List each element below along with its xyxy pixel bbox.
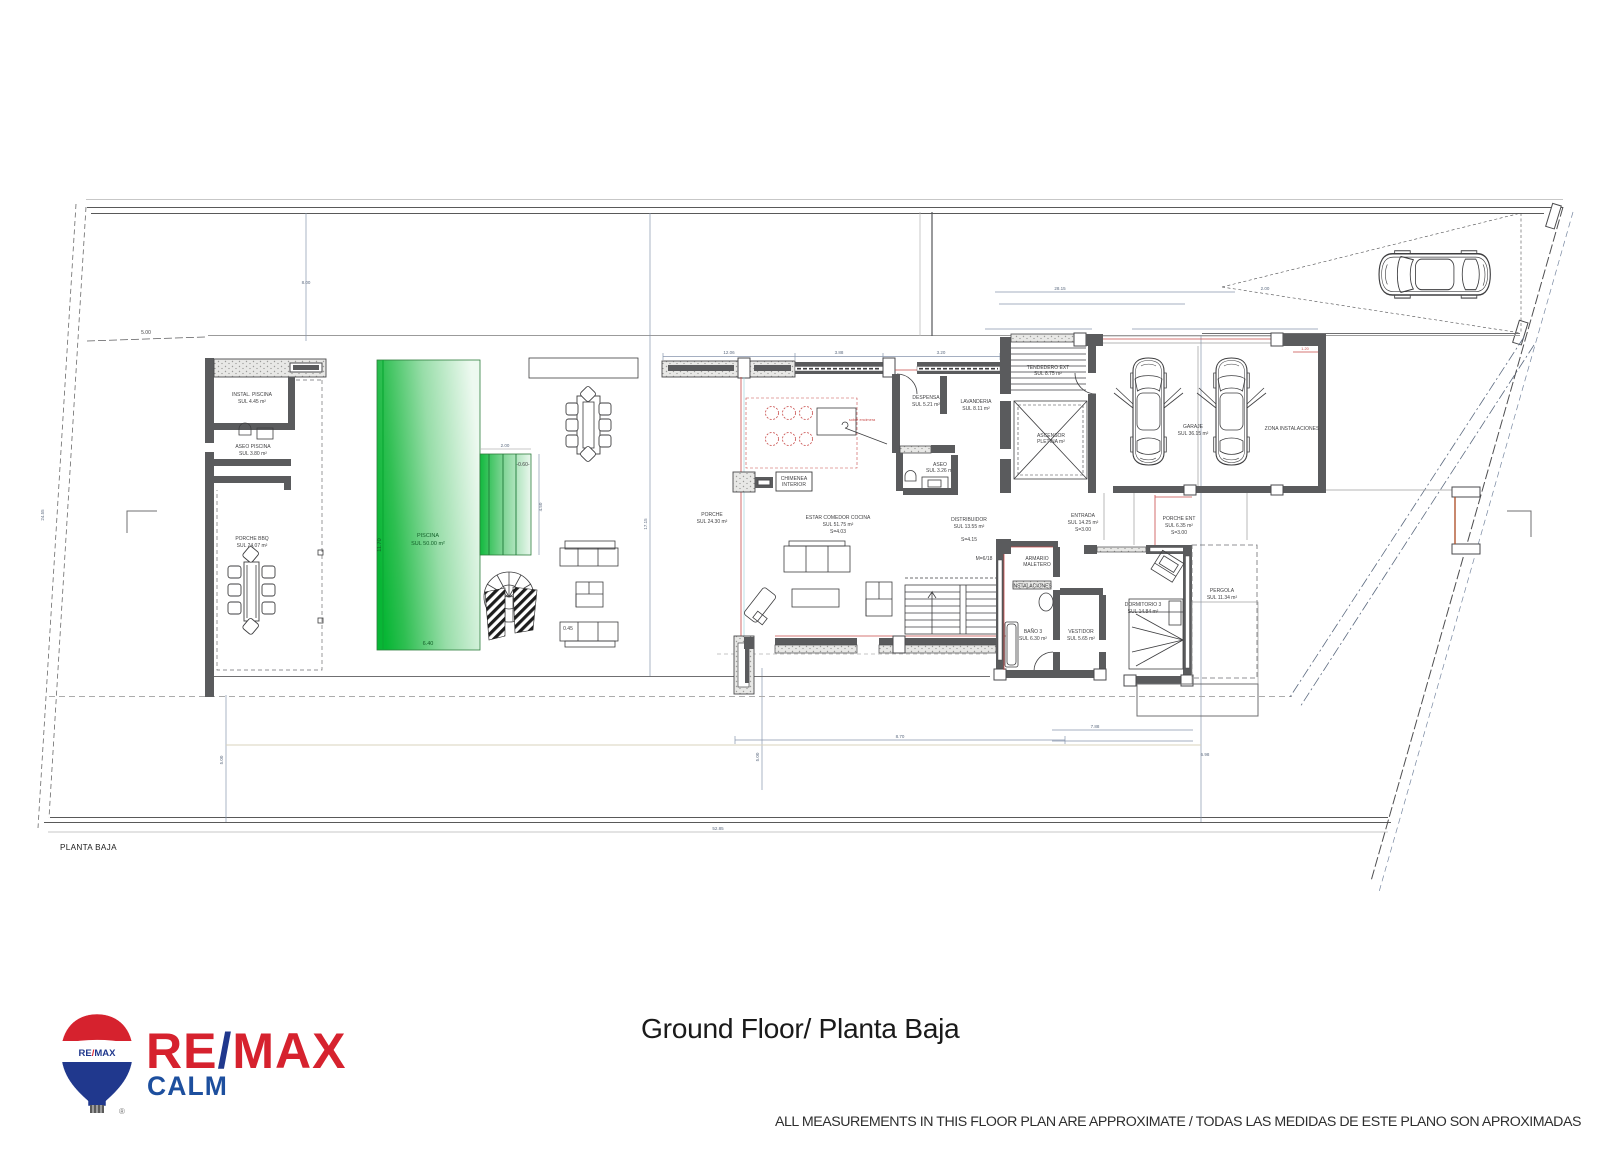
svg-text:Ground Floor/ Planta Baja: Ground Floor/ Planta Baja [641,1012,960,1044]
svg-text:SUL 3.26 m²: SUL 3.26 m² [926,468,954,474]
svg-text:GARAJE: GARAJE [1183,424,1204,430]
svg-text:11.70: 11.70 [377,538,383,551]
svg-text:SUL 36.15 m²: SUL 36.15 m² [1178,431,1209,437]
svg-text:5.00: 5.00 [141,330,151,336]
svg-text:6.40: 6.40 [423,641,434,647]
svg-text:ENTRADA: ENTRADA [1071,513,1096,519]
svg-text:ESTAR COMEDOR COCINA: ESTAR COMEDOR COCINA [806,515,871,521]
svg-text:SUL 14.25 m²: SUL 14.25 m² [1068,520,1099,526]
svg-text:DORMITORIO 3: DORMITORIO 3 [1125,602,1162,608]
svg-text:DISTRIBUIDOR: DISTRIBUIDOR [951,517,987,523]
svg-text:VESTIDOR: VESTIDOR [1068,629,1094,635]
svg-text:M=6/18: M=6/18 [976,556,993,562]
svg-text:S=3.00: S=3.00 [1075,527,1091,533]
svg-text:24.55: 24.55 [40,509,45,521]
svg-text:MALETERO: MALETERO [1023,562,1051,568]
svg-text:SUL 5.21 m²: SUL 5.21 m² [912,402,940,408]
svg-text:52.85: 52.85 [712,826,724,831]
svg-text:3.88: 3.88 [835,350,844,355]
svg-text:7.88: 7.88 [1091,724,1100,729]
svg-text:PLETINA m²: PLETINA m² [1037,439,1065,445]
svg-text:PLANTA BAJA: PLANTA BAJA [60,843,117,852]
svg-text:SUL 13.55 m²: SUL 13.55 m² [954,524,985,530]
svg-text:INTERIOR: INTERIOR [782,482,806,488]
svg-text:DESPENSA: DESPENSA [912,395,940,401]
svg-text:SUL 8.11 m²: SUL 8.11 m² [962,406,990,412]
svg-text:ASEO PISCINA: ASEO PISCINA [235,444,271,450]
svg-text:SUL 6.35 m²: SUL 6.35 m² [1165,523,1193,529]
svg-text:0.45: 0.45 [563,626,573,632]
svg-text:INSTAL. PISCINA: INSTAL. PISCINA [232,392,273,398]
svg-text:SUL 5.65 m²: SUL 5.65 m² [1067,636,1095,642]
svg-text:SUL 4.45 m²: SUL 4.45 m² [238,399,266,405]
svg-text:2.00: 2.00 [501,443,510,448]
svg-text:S=4.03: S=4.03 [830,529,846,535]
svg-text:5.00: 5.00 [219,755,224,764]
svg-text:S=4.15: S=4.15 [961,537,977,543]
svg-text:SUL 8.75 m²: SUL 8.75 m² [1034,371,1062,377]
svg-text:S=3.00: S=3.00 [1171,530,1187,536]
svg-text:SUL 51.75 m²: SUL 51.75 m² [823,522,854,528]
svg-text:8.70: 8.70 [896,734,905,739]
svg-text:SUL 11.34 m²: SUL 11.34 m² [1207,595,1238,601]
svg-text:PORCHE: PORCHE [701,512,723,518]
svg-text:28.15: 28.15 [1054,286,1066,291]
svg-text:3.20: 3.20 [937,350,946,355]
svg-text:2.00: 2.00 [1261,286,1270,291]
svg-text:ZONA INSTALACIONES: ZONA INSTALACIONES [1265,426,1320,432]
svg-text:LAVANDERIA: LAVANDERIA [961,399,993,405]
svg-text:SUL 3.80 m²: SUL 3.80 m² [239,451,267,457]
svg-text:SUL 24.30 m²: SUL 24.30 m² [697,519,728,525]
svg-text:SUL 50.00 m²: SUL 50.00 m² [411,541,445,547]
svg-text:4.50: 4.50 [538,502,543,511]
svg-text:-0.60-: -0.60- [516,462,529,468]
svg-text:BAÑO 3: BAÑO 3 [1024,628,1043,635]
svg-text:®: ® [119,1107,125,1116]
svg-text:1.20: 1.20 [1301,347,1308,351]
svg-text:SUL 6.30 m²: SUL 6.30 m² [1019,636,1047,642]
svg-text:5.00: 5.00 [755,752,760,761]
svg-text:PERGOLA: PERGOLA [1210,588,1235,594]
svg-text:12.06: 12.06 [723,350,735,355]
svg-text:6.98: 6.98 [1201,752,1210,757]
svg-text:PORCHE BBQ: PORCHE BBQ [235,536,268,542]
svg-text:CALM: CALM [147,1071,228,1101]
svg-text:8.00: 8.00 [302,280,311,285]
svg-text:PISCINA: PISCINA [417,533,439,539]
svg-text:sobre encimera: sobre encimera [849,418,876,422]
svg-text:PORCHE ENT: PORCHE ENT [1163,516,1196,522]
svg-text:RE/MAX: RE/MAX [79,1048,117,1059]
svg-text:INSTALACIONES: INSTALACIONES [1012,584,1052,590]
svg-text:17.15: 17.15 [643,518,648,530]
svg-text:ALL MEASUREMENTS IN THIS FLOOR: ALL MEASUREMENTS IN THIS FLOOR PLAN ARE … [775,1114,1581,1130]
